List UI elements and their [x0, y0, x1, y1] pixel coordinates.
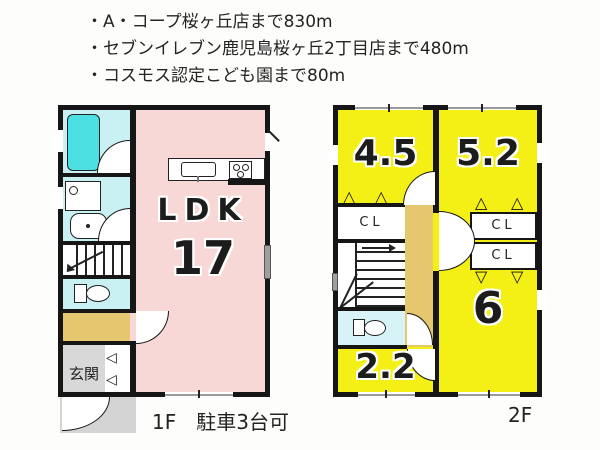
wall [333, 239, 405, 243]
fold-door-icon: △ [511, 195, 523, 211]
wall [333, 307, 405, 311]
kitchen-tap-icon [197, 176, 199, 182]
wall [58, 341, 136, 345]
room-4-5-label: 4.5 [338, 133, 433, 188]
wall-outer-top [58, 105, 270, 110]
window-icon [51, 187, 63, 209]
wall-kitchen [228, 179, 265, 185]
kitchen-sink-icon [181, 162, 216, 177]
window-icon [265, 133, 270, 151]
window-icon [51, 130, 63, 152]
room-6-label: 6 [439, 283, 537, 343]
wall [58, 241, 136, 245]
wall [58, 275, 136, 279]
ldk-size-label: 17 [136, 231, 270, 291]
closet-label: CL [470, 248, 537, 263]
washer-knob-icon [69, 186, 78, 195]
bathtub-icon [67, 114, 100, 171]
stairs-arrow-icon [389, 244, 396, 252]
wall [58, 173, 136, 177]
window-icon [537, 143, 549, 163]
wall [130, 343, 136, 397]
info-line-1: ・A・コープ桜ヶ丘店まで830m [86, 9, 469, 36]
hall-door-arc [136, 311, 169, 344]
fold-door-icon: △ [343, 189, 355, 205]
nearby-facilities-list: ・A・コープ桜ヶ丘店まで830m ・セブンイレブン鹿児島桜ヶ丘2丁目店まで480… [86, 9, 469, 90]
info-line-2: ・セブンイレブン鹿児島桜ヶ丘2丁目店まで480m [86, 36, 469, 63]
toilet-1f-bowl-icon [86, 285, 110, 302]
floor1-caption: 1F 駐車3台可 [152, 406, 289, 435]
window-icon [326, 145, 338, 165]
stairs-1f [63, 245, 130, 279]
closet-label: CL [470, 218, 537, 233]
stairs-direction-line [362, 247, 390, 249]
fold-door-icon: ◁ [106, 373, 117, 387]
wall-outer-bottom [58, 392, 270, 397]
fold-door-icon: △ [475, 195, 487, 211]
room-2-2-label: 2.2 [338, 347, 433, 392]
floor2-plan: △ △ △ △ ▽ ▽ 4.5 5.2 6 2.2 CL CL CL [333, 105, 542, 397]
washing-machine-icon [65, 181, 101, 211]
closet-label: CL [338, 215, 405, 230]
fold-door-icon: △ [375, 189, 387, 205]
washbasin-drain-icon [86, 224, 90, 228]
room-5-2-label: 5.2 [439, 133, 537, 188]
entrance-label: 玄関 [63, 363, 105, 383]
window-icon [332, 273, 338, 291]
stairs-2f [338, 241, 405, 311]
info-line-3: ・コスモス認定こども園まで80m [86, 63, 469, 90]
wall [58, 309, 136, 313]
fold-door-icon: ◁ [106, 351, 117, 365]
window-icon [537, 290, 549, 310]
floor-plan-page: ・A・コープ桜ヶ丘店まで830m ・セブンイレブン鹿児島桜ヶ丘2丁目店まで480… [0, 0, 600, 450]
floor1-plan: ◁ ◁ LDK 17 玄関 [58, 105, 270, 397]
floor2-caption: 2F [508, 403, 532, 427]
toilet-2f-bowl-icon [364, 320, 386, 336]
